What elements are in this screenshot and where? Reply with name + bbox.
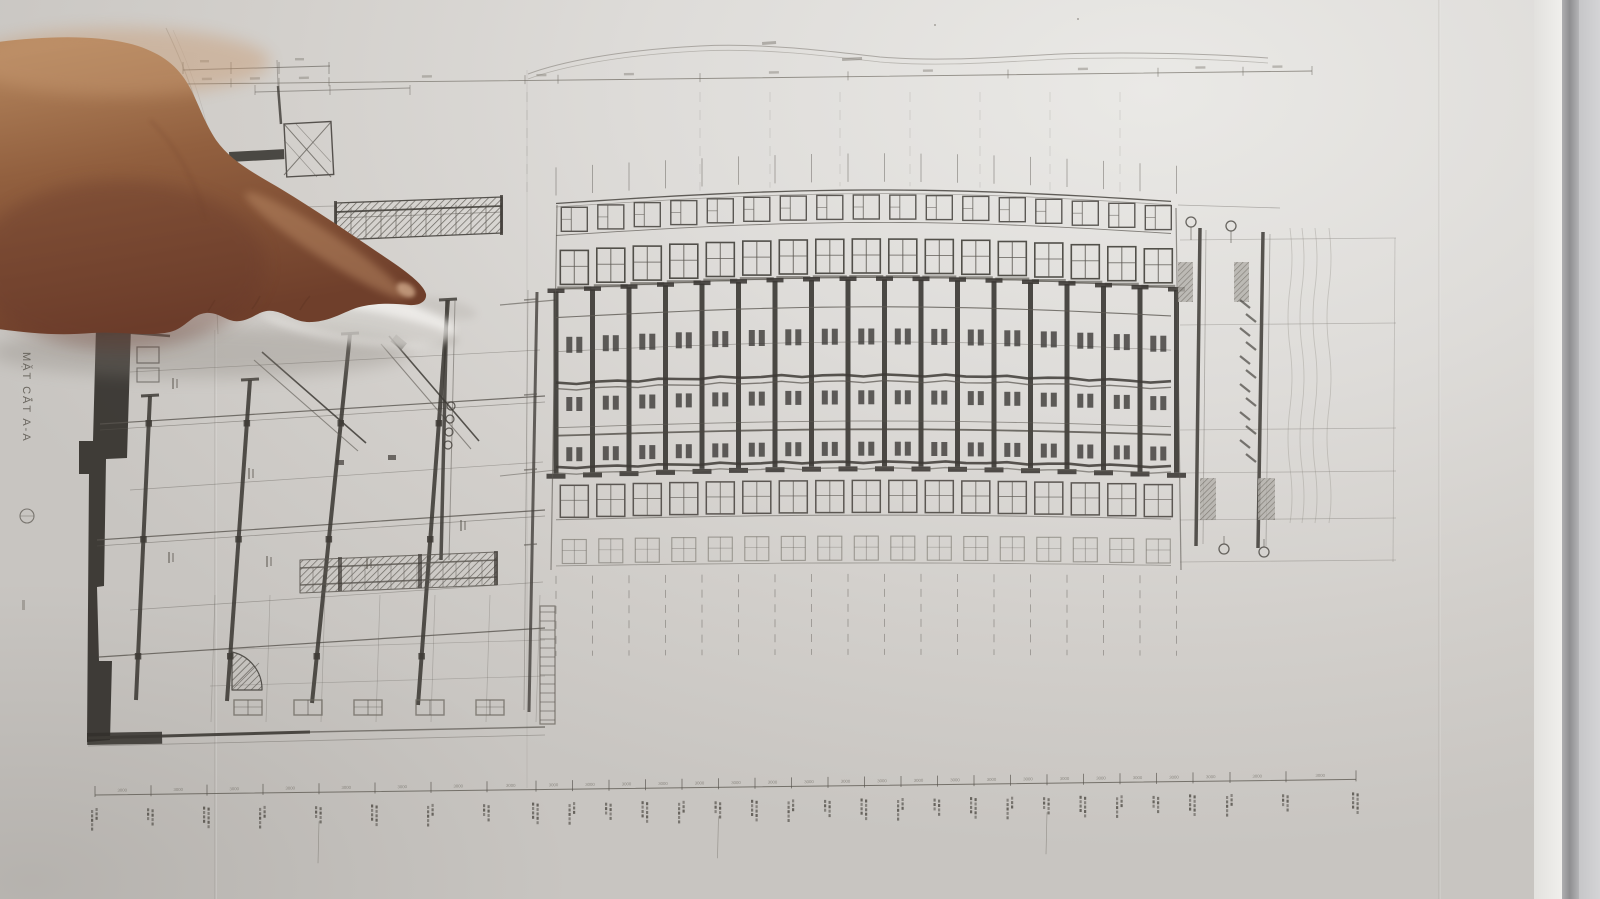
svg-text:3000: 3000 bbox=[229, 786, 239, 791]
svg-text:3000: 3000 bbox=[1133, 775, 1143, 780]
grid-axis-labels bbox=[91, 792, 1359, 863]
svg-text:3000: 3000 bbox=[285, 786, 295, 791]
svg-text:3000: 3000 bbox=[1023, 776, 1033, 781]
svg-text:3000: 3000 bbox=[1060, 776, 1070, 781]
top-dimension-line bbox=[183, 65, 1312, 88]
svg-text:3000: 3000 bbox=[1206, 774, 1216, 779]
svg-text:3000: 3000 bbox=[695, 780, 705, 785]
stair-tower bbox=[1178, 205, 1396, 562]
svg-text:3000: 3000 bbox=[453, 783, 463, 788]
svg-text:3000: 3000 bbox=[1252, 774, 1262, 779]
bottom-dimension-chain: 3000300030003000300030003000300030003000… bbox=[95, 770, 1356, 797]
svg-text:3000: 3000 bbox=[658, 781, 668, 786]
svg-text:3000: 3000 bbox=[549, 782, 559, 787]
svg-text:3000: 3000 bbox=[506, 783, 516, 788]
pointing-hand bbox=[0, 28, 426, 350]
svg-text:3000: 3000 bbox=[117, 788, 127, 793]
svg-text:3000: 3000 bbox=[768, 780, 778, 785]
main-elevation bbox=[527, 18, 1186, 788]
svg-text:3000: 3000 bbox=[841, 779, 851, 784]
svg-text:3000: 3000 bbox=[877, 778, 887, 783]
svg-text:3000: 3000 bbox=[622, 781, 632, 786]
svg-text:3000: 3000 bbox=[804, 779, 814, 784]
svg-text:3000: 3000 bbox=[1096, 776, 1106, 781]
architectural-section-drawing: 3000300030003000300030003000300030003000… bbox=[0, 0, 1600, 899]
svg-text:3000: 3000 bbox=[341, 785, 351, 790]
svg-text:3000: 3000 bbox=[173, 787, 183, 792]
svg-text:3000: 3000 bbox=[731, 780, 741, 785]
svg-text:3000: 3000 bbox=[950, 777, 960, 782]
svg-text:3000: 3000 bbox=[585, 782, 595, 787]
svg-text:3000: 3000 bbox=[1169, 775, 1179, 780]
svg-text:3000: 3000 bbox=[1315, 773, 1325, 778]
svg-text:3000: 3000 bbox=[397, 784, 407, 789]
svg-text:3000: 3000 bbox=[987, 777, 997, 782]
photo-of-blueprint: 3000300030003000300030003000300030003000… bbox=[0, 0, 1600, 899]
section-title: MẶT CẮT A-A bbox=[20, 352, 32, 443]
svg-text:3000: 3000 bbox=[914, 778, 924, 783]
